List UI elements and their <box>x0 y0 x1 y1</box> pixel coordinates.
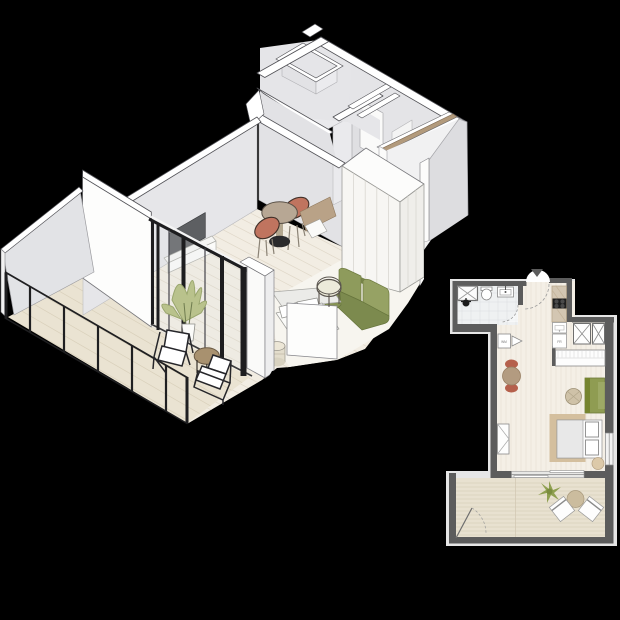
svg-text:WM: WM <box>501 340 507 344</box>
svg-text:FR: FR <box>557 340 562 344</box>
